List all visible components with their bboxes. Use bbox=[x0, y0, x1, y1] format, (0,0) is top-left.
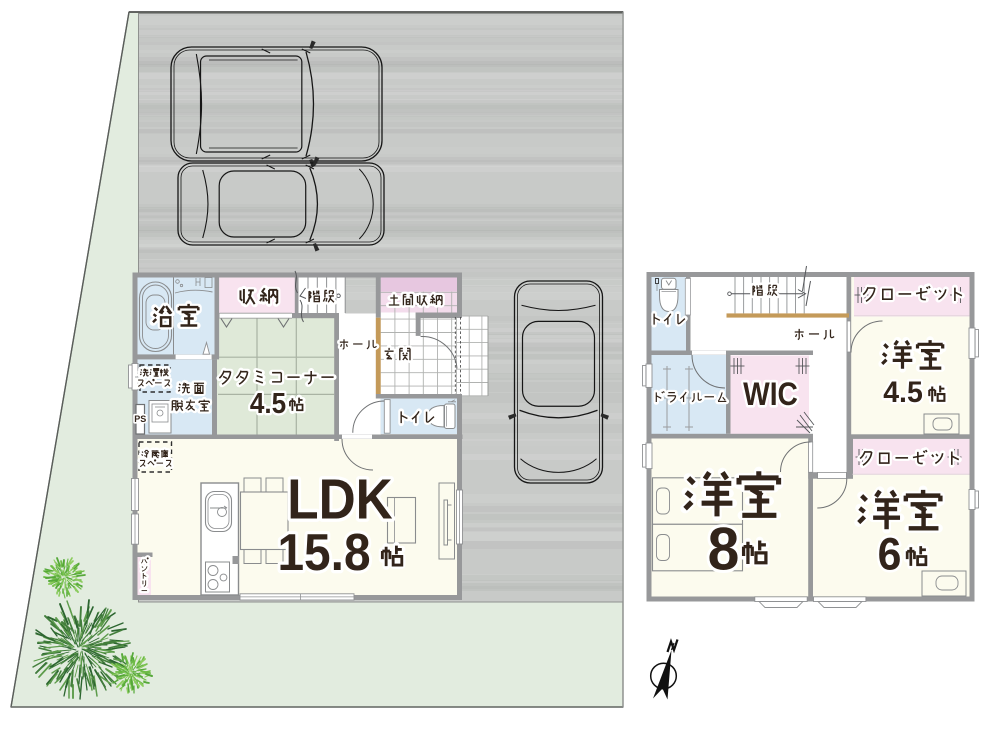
svg-text:PS: PS bbox=[134, 414, 146, 424]
svg-text:WIC: WIC bbox=[743, 377, 798, 412]
svg-text:8: 8 bbox=[708, 516, 740, 583]
svg-text:LDK: LDK bbox=[287, 468, 392, 531]
svg-text:4.5: 4.5 bbox=[250, 387, 286, 420]
svg-text:6: 6 bbox=[878, 530, 902, 580]
svg-text:4.5: 4.5 bbox=[883, 376, 923, 409]
svg-text:15.8: 15.8 bbox=[277, 523, 370, 581]
